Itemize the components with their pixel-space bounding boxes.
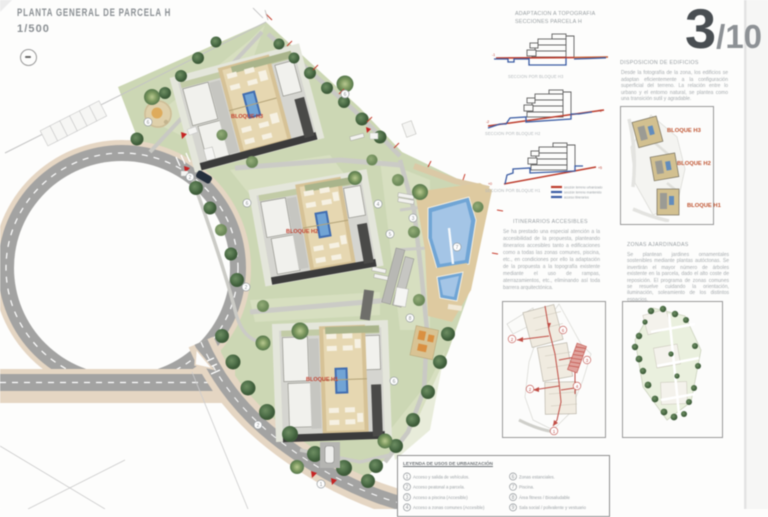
svg-text:Piscina.: Piscina.: [519, 485, 534, 490]
svg-text:Acceso y salida de vehículos.: Acceso y salida de vehículos.: [413, 474, 469, 479]
svg-text:BLOQUE H1: BLOQUE H1: [687, 203, 722, 209]
svg-text:Acceso a zonas comunes (Accesi: Acceso a zonas comunes (Accesible): [413, 505, 485, 510]
svg-text:Acceso a piscina (Accesible): Acceso a piscina (Accesible): [413, 495, 468, 500]
svg-text:6: 6: [147, 120, 150, 126]
svg-text:2: 2: [257, 423, 260, 429]
svg-text:2: 2: [406, 485, 409, 491]
svg-text:-2: -2: [486, 120, 489, 124]
svg-text:sección terreno urbanizado: sección terreno urbanizado: [564, 186, 603, 190]
svg-text:2: 2: [245, 285, 248, 291]
svg-text:acceso itinerarios: acceso itinerarios: [564, 196, 589, 200]
svg-text:BLOQUE H2: BLOQUE H2: [677, 161, 711, 167]
svg-text:8: 8: [512, 495, 515, 501]
svg-text:Área fitness / Biosaludable: Área fitness / Biosaludable: [519, 495, 570, 500]
svg-text:1: 1: [406, 474, 409, 480]
svg-text:+5: +5: [598, 166, 602, 170]
svg-text:BLOQUE H3: BLOQUE H3: [667, 128, 702, 134]
svg-text:sección terreno mantenido: sección terreno mantenido: [564, 191, 602, 195]
svg-text:2: 2: [189, 175, 192, 181]
svg-text:1: 1: [320, 482, 323, 488]
svg-text:4: 4: [406, 505, 409, 511]
svg-text:6: 6: [393, 379, 396, 385]
svg-text:Acceso peatonal a parcela.: Acceso peatonal a parcela.: [413, 485, 465, 490]
svg-text:Sala social / polivalente y ve: Sala social / polivalente y vestuario: [519, 505, 586, 510]
svg-text:9: 9: [512, 505, 515, 511]
svg-text:BLOQUE H2: BLOQUE H2: [286, 229, 318, 235]
svg-text:BLOQUE H3: BLOQUE H3: [231, 114, 263, 120]
svg-text:7: 7: [456, 245, 459, 251]
svg-text:6: 6: [344, 92, 347, 98]
svg-text:3: 3: [412, 216, 415, 222]
svg-text:6: 6: [246, 201, 249, 207]
svg-text:8: 8: [409, 316, 412, 322]
svg-text:-1: -1: [492, 53, 495, 57]
svg-text:3: 3: [406, 495, 409, 501]
svg-text:6: 6: [512, 474, 515, 480]
svg-text:7: 7: [512, 485, 515, 491]
svg-text:4: 4: [377, 202, 380, 208]
svg-text:Zonas estanciales.: Zonas estanciales.: [519, 474, 555, 479]
svg-text:+2: +2: [598, 109, 602, 113]
svg-text:5: 5: [389, 232, 392, 238]
svg-text:BLOQUE H1: BLOQUE H1: [306, 377, 338, 383]
svg-text:+0: +0: [488, 182, 492, 186]
